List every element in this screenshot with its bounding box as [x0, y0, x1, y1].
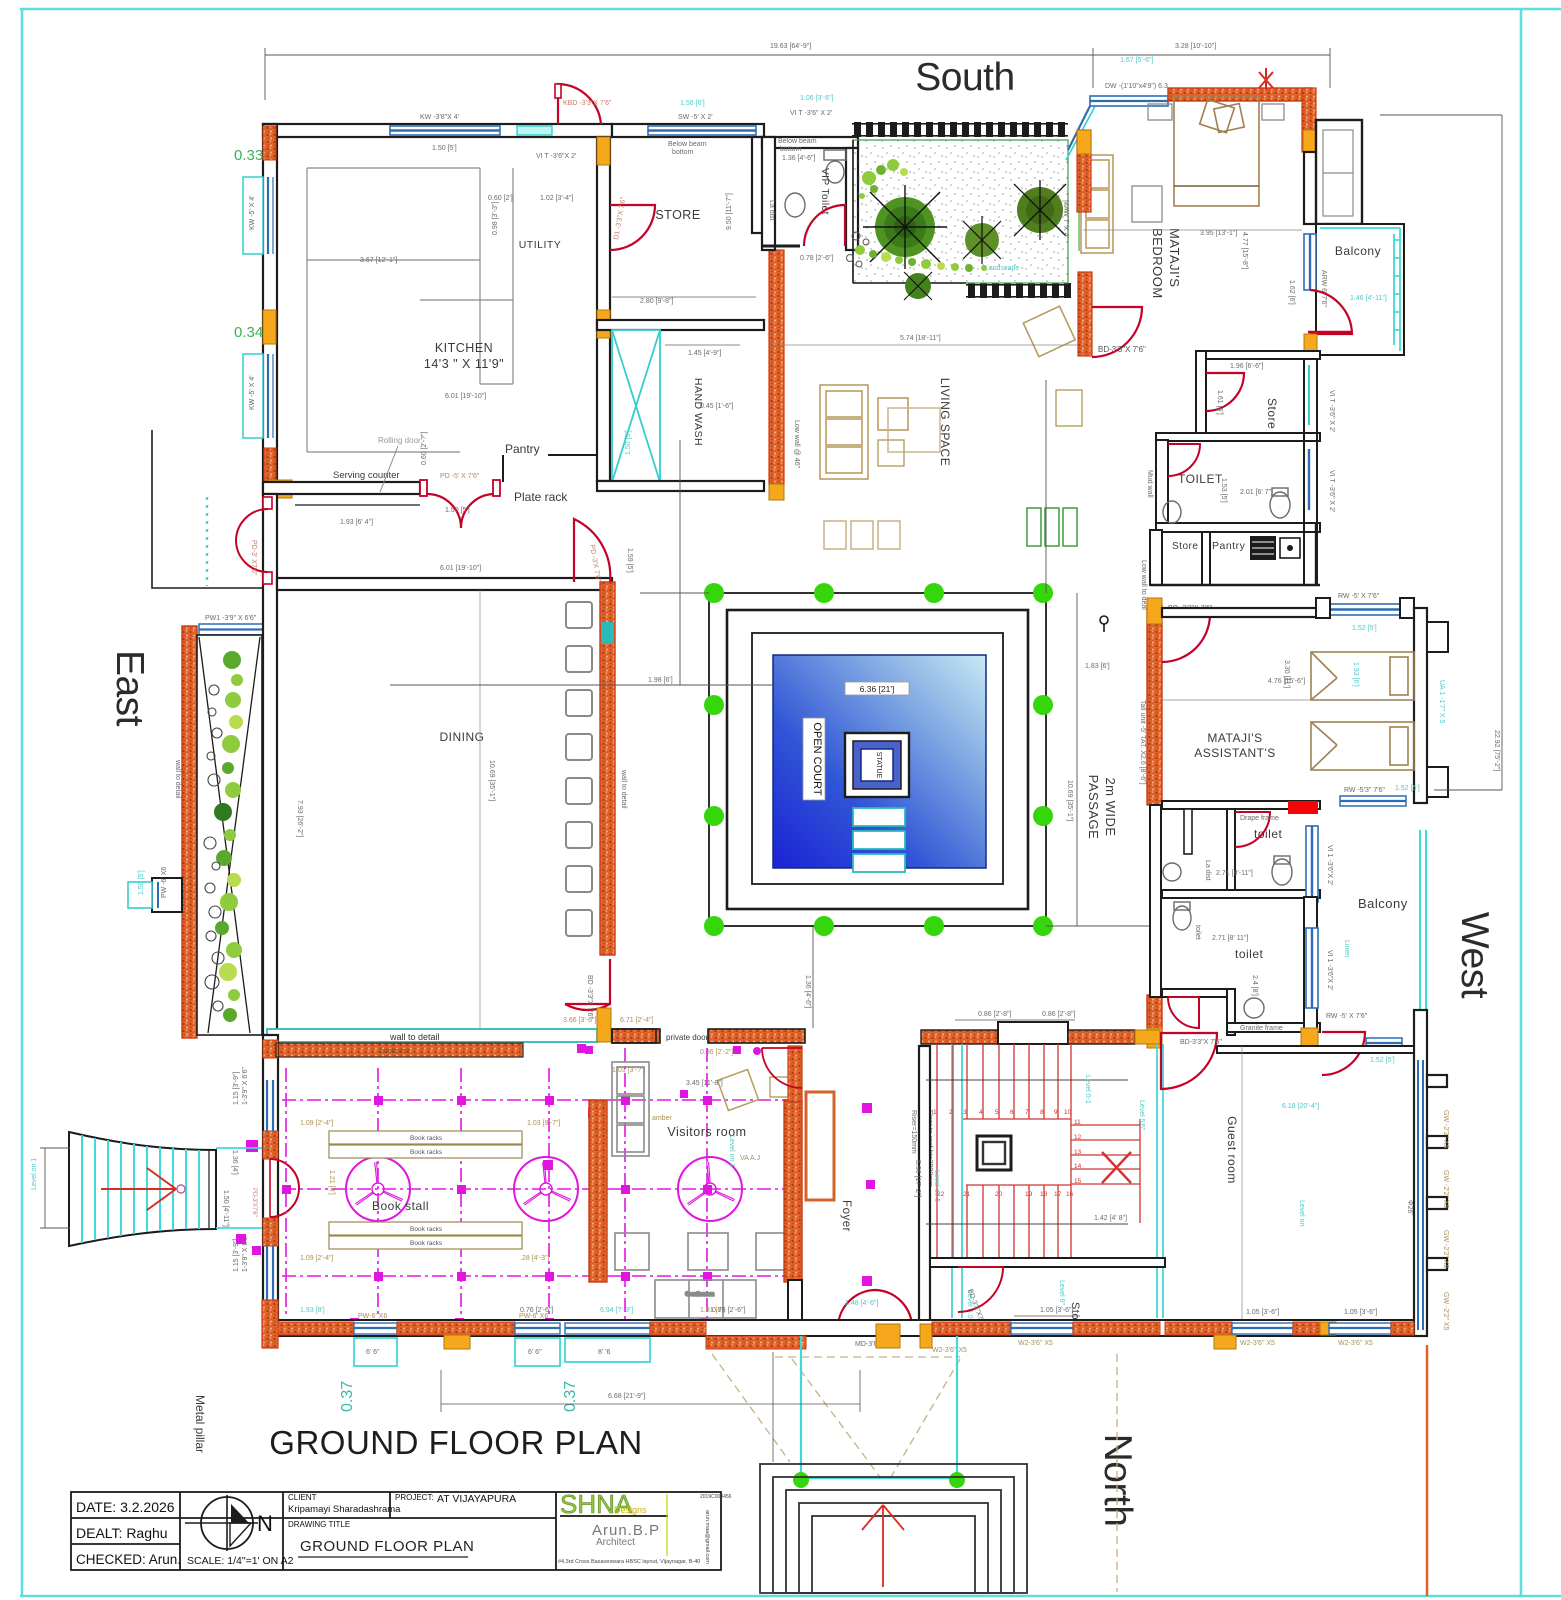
svg-text:SW -5' X 2': SW -5' X 2'	[678, 114, 713, 121]
svg-text:1.98 [6']: 1.98 [6']	[648, 677, 673, 684]
svg-text:1.59 [5']: 1.59 [5']	[626, 548, 633, 573]
svg-text:Low wall @ 46": Low wall @ 46"	[793, 420, 800, 469]
svg-text:1.36 [4']: 1.36 [4']	[231, 1150, 238, 1175]
svg-text:5.74 [18'-11"]: 5.74 [18'-11"]	[900, 335, 941, 342]
svg-text:1.09 [2'-4"]: 1.09 [2'-4"]	[300, 1120, 333, 1127]
svg-text:6.01 [19'-10"]: 6.01 [19'-10"]	[440, 565, 481, 572]
svg-text:KW -5' X 4': KW -5' X 4'	[249, 375, 256, 410]
svg-text:Level on 5: Level on 5	[933, 1170, 940, 1202]
svg-text:GW -2'2" X5: GW -2'2" X5	[1442, 1170, 1449, 1209]
svg-text:RW -5'3" 7'6": RW -5'3" 7'6"	[1344, 787, 1385, 794]
svg-text:PROJECT:: PROJECT:	[395, 1493, 434, 1502]
svg-text:ARW 6' 7'6": ARW 6' 7'6"	[1320, 270, 1327, 307]
svg-text:N: N	[257, 1511, 273, 1536]
svg-text:Plate rack: Plate rack	[514, 490, 568, 504]
svg-text:UTILITY: UTILITY	[519, 239, 562, 251]
svg-text:GW -2'2" X5: GW -2'2" X5	[1442, 1230, 1449, 1269]
svg-text:2.80 [9'-8"]: 2.80 [9'-8"]	[640, 298, 673, 305]
svg-text:PW1 -3'9" X 6'6": PW1 -3'9" X 6'6"	[205, 615, 257, 622]
svg-text:UA 1 -1'7" X 5: UA 1 -1'7" X 5	[1438, 680, 1445, 724]
svg-text:1.61 [5']: 1.61 [5']	[1216, 390, 1223, 415]
svg-text:bookcase: bookcase	[380, 1048, 410, 1055]
svg-text:Metal pillar: Metal pillar	[193, 1395, 207, 1453]
svg-text:Below beam: Below beam	[668, 141, 707, 148]
svg-text:La dist: La dist	[1204, 860, 1211, 881]
svg-text:MATAJI'S: MATAJI'S	[1167, 228, 1182, 287]
svg-text:16: 16	[1066, 1191, 1074, 1198]
svg-text:SCALE: 1/4"=1' ON A2: SCALE: 1/4"=1' ON A2	[187, 1555, 294, 1567]
svg-text:0.60 [2']: 0.60 [2']	[488, 195, 513, 202]
svg-text:1.45 [4'-9"]: 1.45 [4'-9"]	[688, 350, 721, 357]
svg-text:toilet: toilet	[1235, 947, 1264, 961]
svg-text:6.94 [?'-9"]: 6.94 [?'-9"]	[600, 1307, 633, 1314]
svg-text:#4,3rd Cross Basaveswara HBSC: #4,3rd Cross Basaveswara HBSC layout, Vi…	[558, 1559, 700, 1565]
svg-text:14'3 " X 11'9": 14'3 " X 11'9"	[424, 357, 504, 371]
svg-text:Architect: Architect	[596, 1537, 635, 1548]
svg-text:Landscape: Landscape	[985, 265, 1019, 272]
svg-text:21: 21	[963, 1191, 971, 1198]
svg-text:6: 6	[1010, 1109, 1014, 1116]
svg-text:PD-3'X7'6": PD-3'X7'6"	[251, 1188, 257, 1217]
svg-text:Book racks: Book racks	[410, 1226, 443, 1233]
svg-text:Guest room: Guest room	[1225, 1116, 1239, 1184]
svg-text:Drape frame: Drape frame	[1240, 815, 1279, 822]
svg-text:Book racks: Book racks	[410, 1240, 443, 1247]
svg-text:2: 2	[949, 1109, 953, 1116]
svg-text:amber: amber	[652, 1115, 673, 1122]
svg-text:2m WIDE: 2m WIDE	[1103, 777, 1118, 836]
svg-text:PD-3' X7'6": PD-3' X7'6"	[250, 540, 257, 576]
svg-text:KITCHEN: KITCHEN	[435, 341, 493, 355]
svg-text:10: 10	[1064, 1109, 1072, 1116]
svg-text:8: 8	[1040, 1109, 1044, 1116]
svg-text:22.92 [75'-2"]: 22.92 [75'-2"]	[1493, 730, 1500, 771]
svg-text:East: East	[108, 650, 151, 727]
svg-text:9.50 [11'-7"]: 9.50 [11'-7"]	[726, 193, 733, 230]
svg-text:0.60 [2'-?"]: 0.60 [2'-?"]	[421, 432, 428, 465]
svg-text:11: 11	[1074, 1119, 1081, 1126]
svg-text:14: 14	[1074, 1163, 1082, 1170]
svg-text:Balcony: Balcony	[1335, 244, 1381, 258]
svg-text:PD -5' X 7'6": PD -5' X 7'6"	[440, 473, 480, 480]
svg-text:6.68 [21'-9"]: 6.68 [21'-9"]	[608, 1393, 645, 1400]
svg-text:3.28 [10'-10"]: 3.28 [10'-10"]	[1175, 43, 1216, 50]
svg-text:12: 12	[1074, 1134, 1082, 1141]
svg-text:PW -6' X6: PW -6' X6	[161, 867, 168, 898]
svg-text:RW -5' X 7'6": RW -5' X 7'6"	[1326, 1013, 1368, 1020]
svg-text:VI T -3'6"X 2': VI T -3'6"X 2'	[536, 153, 576, 160]
svg-text:Pantry: Pantry	[1212, 540, 1246, 552]
svg-text:Gentlemen: Gentlemen	[685, 1292, 714, 1298]
svg-text:STORE: STORE	[655, 208, 700, 222]
svg-text:1.02 [3'-4"]: 1.02 [3'-4"]	[540, 195, 573, 202]
svg-text:wall to detail: wall to detail	[174, 759, 181, 799]
svg-text:Balcony: Balcony	[1358, 896, 1408, 911]
svg-text:0.86 [2'-2"]: 0.86 [2'-2"]	[700, 1049, 733, 1056]
svg-text:Below beam: Below beam	[778, 138, 817, 145]
svg-text:6.71 [2'-4"]: 6.71 [2'-4"]	[620, 1017, 653, 1024]
svg-text:13: 13	[1074, 1149, 1082, 1156]
svg-text:Tall unit -5' TAT. X2.6 [8'-6": Tall unit -5' TAT. X2.6 [8'-6"]	[1139, 700, 1146, 785]
svg-text:PASSAGE: PASSAGE	[1086, 775, 1101, 840]
svg-text:KW -3'8"X 4': KW -3'8"X 4'	[420, 114, 459, 121]
svg-text:AT VIJAYAPURA: AT VIJAYAPURA	[437, 1493, 516, 1505]
svg-text:Level 0-1: Level 0-1	[1084, 1075, 1091, 1104]
svg-text:West: West	[1453, 912, 1496, 999]
svg-text:1.03 [9'-7"]: 1.03 [9'-7"]	[527, 1120, 560, 1127]
svg-text:6.36 [21']: 6.36 [21']	[860, 684, 895, 694]
svg-text:6.01 [19'-10"]: 6.01 [19'-10"]	[445, 393, 486, 400]
svg-text:Pantry: Pantry	[505, 442, 540, 456]
svg-text:.28 [4'-3"]: .28 [4'-3"]	[520, 1255, 550, 1262]
svg-text:5: 5	[995, 1109, 999, 1116]
svg-text:1.36 [4'-6"]: 1.36 [4'-6"]	[782, 155, 815, 162]
svg-text:Φ26': Φ26'	[1406, 1200, 1413, 1215]
svg-text:0.76 [2'-6"]: 0.76 [2'-6"]	[520, 1307, 553, 1314]
svg-text:Book racks: Book racks	[410, 1149, 443, 1156]
svg-text:1.36 [4'-6"]: 1.36 [4'-6"]	[804, 975, 811, 1008]
svg-text:GROUND FLOOR PLAN: GROUND FLOOR PLAN	[300, 1538, 474, 1555]
svg-text:BEDROOM: BEDROOM	[1150, 228, 1165, 299]
svg-text:wall to detail: wall to detail	[620, 769, 627, 809]
svg-text:DATE: 3.2.2026: DATE: 3.2.2026	[76, 1499, 175, 1515]
svg-text:1.48 [4'-6"]: 1.48 [4'-6"]	[845, 1300, 878, 1307]
svg-text:Low wall to deal: Low wall to deal	[1140, 560, 1147, 610]
svg-text:2.4 [8']: 2.4 [8']	[1251, 975, 1258, 996]
svg-text:10.69 [35'-1"]: 10.69 [35'-1"]	[1066, 780, 1073, 821]
svg-text:bottom: bottom	[780, 146, 802, 153]
svg-text:4.77 [15'-8"]: 4.77 [15'-8"]	[1241, 232, 1248, 269]
svg-text:9: 9	[1054, 1109, 1058, 1116]
svg-text:KBD -3'3"X 7'6": KBD -3'3"X 7'6"	[563, 100, 612, 107]
svg-text:private door: private door	[666, 1033, 709, 1042]
svg-text:Foyer: Foyer	[840, 1200, 852, 1232]
svg-text:Designs: Designs	[614, 1505, 647, 1515]
svg-text:MATAJI'S: MATAJI'S	[1207, 731, 1262, 745]
svg-text:VI T -3'6" X 2': VI T -3'6" X 2'	[790, 110, 832, 117]
svg-text:1.50 [4'-11"]: 1.50 [4'-11"]	[222, 1190, 229, 1227]
svg-text:0.86 [2'-8"]: 0.86 [2'-8"]	[1042, 1011, 1075, 1018]
svg-text:Granite frame: Granite frame	[1240, 1025, 1283, 1032]
svg-text:19.63 [64'-9"]: 19.63 [64'-9"]	[770, 43, 811, 50]
svg-text:1: 1	[933, 1109, 937, 1116]
svg-text:KW -5' X 4': KW -5' X 4'	[249, 195, 256, 230]
svg-text:3.30 [11']: 3.30 [11']	[1283, 660, 1290, 688]
svg-text:1.09 [2'-4"]: 1.09 [2'-4"]	[300, 1255, 333, 1262]
svg-text:0.37: 0.37	[562, 1381, 579, 1412]
svg-text:South: South	[915, 56, 1014, 99]
svg-text:Kripamayi Sharadashrama: Kripamayi Sharadashrama	[288, 1504, 401, 1515]
svg-text:W2-3'6" X5: W2-3'6" X5	[932, 1347, 967, 1354]
svg-text:DRAWING TITLE: DRAWING TITLE	[288, 1520, 350, 1529]
svg-text:0.98 [3'-3"]: 0.98 [3'-3"]	[492, 202, 499, 235]
svg-text:19: 19	[1025, 1191, 1033, 1198]
svg-text:1.50 [5']: 1.50 [5']	[138, 870, 145, 895]
svg-text:1.93 [6']: 1.93 [6']	[1352, 662, 1359, 687]
svg-text:1.05 [3'-6"]: 1.05 [3'-6"]	[1246, 1309, 1279, 1316]
svg-text:1.83 [6']: 1.83 [6']	[1085, 663, 1110, 670]
svg-text:VI 1 -3'6"X 2': VI 1 -3'6"X 2'	[1326, 950, 1333, 990]
svg-text:1.05 [3'-6"]: 1.05 [3'-6"]	[1040, 1307, 1073, 1314]
svg-text:DEALT: Raghu: DEALT: Raghu	[76, 1525, 168, 1541]
svg-text:1-3'9" X 6'6": 1-3'9" X 6'6"	[242, 1066, 249, 1105]
svg-text:15: 15	[1074, 1178, 1082, 1185]
svg-text:TOILET: TOILET	[1178, 472, 1223, 486]
svg-text:1.62 [6']: 1.62 [6']	[1288, 280, 1295, 305]
svg-text:VI 1 -3'6"X 2': VI 1 -3'6"X 2'	[1326, 845, 1333, 885]
svg-text:2019C003456: 2019C003456	[700, 1494, 732, 1500]
svg-text:7: 7	[1025, 1109, 1029, 1116]
svg-text:3.66 [3'-6"]: 3.66 [3'-6"]	[563, 1017, 596, 1024]
svg-text:PW-6' X6: PW-6' X6	[358, 1313, 387, 1320]
svg-text:1.50 [5']: 1.50 [5']	[625, 430, 632, 455]
svg-text:W2-3'6" X5: W2-3'6" X5	[1338, 1340, 1373, 1347]
svg-text:10.69 [35'-1"]: 10.69 [35'-1"]	[488, 760, 495, 801]
svg-text:1.15 [3'-9"]: 1.15 [3'-9"]	[233, 1072, 240, 1105]
svg-text:0.33: 0.33	[234, 147, 263, 164]
svg-text:1.53 [5']: 1.53 [5']	[1220, 478, 1227, 503]
svg-text:0.37: 0.37	[339, 1381, 356, 1412]
svg-text:STATUE: STATUE	[875, 752, 882, 779]
svg-text:20: 20	[995, 1191, 1003, 1198]
svg-text:toilet: toilet	[1194, 925, 1201, 940]
svg-text:1.42 [4' 8"]: 1.42 [4' 8"]	[1094, 1215, 1127, 1222]
svg-text:1.56 [6']: 1.56 [6']	[680, 100, 705, 107]
svg-text:Book racks: Book racks	[410, 1135, 443, 1142]
svg-text:VI T -3'6" X 2': VI T -3'6" X 2'	[1328, 390, 1335, 432]
svg-text:1.50 [5']: 1.50 [5']	[432, 145, 457, 152]
svg-text:VA A.J: VA A.J	[740, 1155, 760, 1162]
svg-text:17: 17	[1054, 1191, 1062, 1198]
svg-text:Level on 1: Level on 1	[31, 1158, 38, 1190]
svg-text:6' 6": 6' 6"	[366, 1349, 380, 1356]
svg-text:1.52 [5']: 1.52 [5']	[1370, 1057, 1395, 1064]
svg-text:4: 4	[979, 1109, 983, 1116]
svg-text:La dist: La dist	[768, 200, 775, 221]
svg-text:Store: Store	[1172, 541, 1198, 552]
svg-text:W2-3'6" X5: W2-3'6" X5	[1018, 1340, 1053, 1347]
svg-text:3.95 [13'-1"]: 3.95 [13'-1"]	[1200, 230, 1237, 237]
svg-text:ASSISTANT'S: ASSISTANT'S	[1194, 746, 1276, 760]
svg-text:GW -2'2" X5: GW -2'2" X5	[1442, 1292, 1449, 1331]
svg-text:6' 6": 6' 6"	[528, 1349, 542, 1356]
svg-text:6.18 [20'-4"]: 6.18 [20'-4"]	[1282, 1103, 1319, 1110]
svg-text:3.45 [11'-8"]: 3.45 [11'-8"]	[686, 1080, 723, 1087]
svg-text:1.52 [5']: 1.52 [5']	[1395, 785, 1420, 792]
svg-text:Level 5'6": Level 5'6"	[1138, 1100, 1145, 1131]
svg-text:CHECKED: Arun.: CHECKED: Arun.	[76, 1552, 181, 1567]
svg-text:1.93 [6' 4"]: 1.93 [6' 4"]	[340, 519, 373, 526]
svg-text:BD-3'3"X 7'6": BD-3'3"X 7'6"	[1098, 345, 1146, 354]
svg-text:Level 9": Level 9"	[1058, 1280, 1065, 1306]
svg-text:HAND WASH: HAND WASH	[692, 378, 704, 446]
svg-text:1.93 [8']: 1.93 [8']	[300, 1307, 325, 1314]
svg-text:VI T -3'6" X 2': VI T -3'6" X 2'	[1328, 470, 1335, 512]
svg-text:GROUND FLOOR PLAN: GROUND FLOOR PLAN	[269, 1424, 642, 1461]
svg-text:Store: Store	[1265, 398, 1279, 429]
svg-text:1.96 [6'-6"]: 1.96 [6'-6"]	[1230, 363, 1263, 370]
svg-text:1.21 [4']: 1.21 [4']	[328, 1170, 335, 1195]
svg-text:GW -2'2" X5: GW -2'2" X5	[1442, 1110, 1449, 1149]
svg-text:1.05 [3'-6"]: 1.05 [3'-6"]	[1344, 1309, 1377, 1316]
svg-text:2.01 [6' 7"]: 2.01 [6' 7"]	[1240, 489, 1273, 496]
svg-text:BD-3'3"X 7'6": BD-3'3"X 7'6"	[1180, 1039, 1222, 1046]
svg-text:Level on: Level on	[1298, 1200, 1305, 1227]
svg-text:8' '6: 8' '6	[598, 1349, 611, 1356]
svg-text:7.93 [26'-2"]: 7.93 [26'-2"]	[296, 800, 303, 837]
svg-text:0.76 [2'-6"]: 0.76 [2'-6"]	[712, 1307, 745, 1314]
svg-text:DW -(1'10"x4'9") 6.3: DW -(1'10"x4'9") 6.3	[1105, 83, 1168, 90]
svg-text:18: 18	[1040, 1191, 1048, 1198]
svg-text:RW -5' X 7'6": RW -5' X 7'6"	[1338, 593, 1380, 600]
svg-text:MAW 7' X 4': MAW 7' X 4'	[1062, 200, 1069, 238]
svg-text:CLIENT: CLIENT	[288, 1493, 317, 1502]
svg-text:3: 3	[963, 1109, 967, 1116]
svg-text:5.96 [17'-2"]: 5.96 [17'-2"]	[914, 1160, 921, 1197]
svg-text:OPEN COURT: OPEN COURT	[811, 722, 823, 795]
svg-text:1.52 [5']: 1.52 [5']	[1352, 625, 1377, 632]
svg-text:Mud wall: Mud wall	[1146, 470, 1153, 498]
svg-text:Riser=150mm: Riser=150mm	[910, 1110, 917, 1154]
svg-text:2.71 [8' 11"]: 2.71 [8' 11"]	[1212, 935, 1248, 942]
svg-text:2.71 [8'-11"]: 2.71 [8'-11"]	[1216, 870, 1253, 877]
svg-text:arun.maa@gmail.com: arun.maa@gmail.com	[704, 1510, 710, 1564]
svg-text:Serving counter: Serving counter	[333, 470, 400, 481]
svg-text:Book stall: Book stall	[372, 1199, 429, 1213]
svg-text:Rolling door: Rolling door	[378, 436, 421, 445]
svg-text:1.06 [3'-6"]: 1.06 [3'-6"]	[800, 95, 833, 102]
svg-text:Level on 1: Level on 1	[728, 1135, 735, 1167]
svg-text:DINING: DINING	[440, 730, 485, 744]
svg-text:PW-6' X6: PW-6' X6	[519, 1313, 548, 1320]
svg-text:0.45 [1'-6"]: 0.45 [1'-6"]	[700, 403, 733, 410]
svg-text:0.34: 0.34	[234, 324, 263, 341]
svg-text:W2-3'6" X5: W2-3'6" X5	[1240, 1340, 1275, 1347]
svg-text:0.78 [2'-6"]: 0.78 [2'-6"]	[800, 255, 833, 262]
svg-text:1.46 [4'-11"]: 1.46 [4'-11"]	[1350, 295, 1387, 302]
svg-text:Linen: Linen	[1343, 940, 1350, 957]
svg-text:1.67 [5'-6"]: 1.67 [5'-6"]	[1120, 57, 1153, 64]
svg-text:0.86 [2'-8"]: 0.86 [2'-8"]	[978, 1011, 1011, 1018]
svg-text:BD -3'3"X 7'6": BD -3'3"X 7'6"	[586, 975, 593, 1019]
svg-text:bottom: bottom	[672, 149, 694, 156]
svg-text:wall to detail: wall to detail	[389, 1032, 440, 1042]
svg-text:1.50 [5']: 1.50 [5']	[445, 507, 470, 514]
svg-text:3.67 [12'-1"]: 3.67 [12'-1"]	[360, 257, 397, 264]
